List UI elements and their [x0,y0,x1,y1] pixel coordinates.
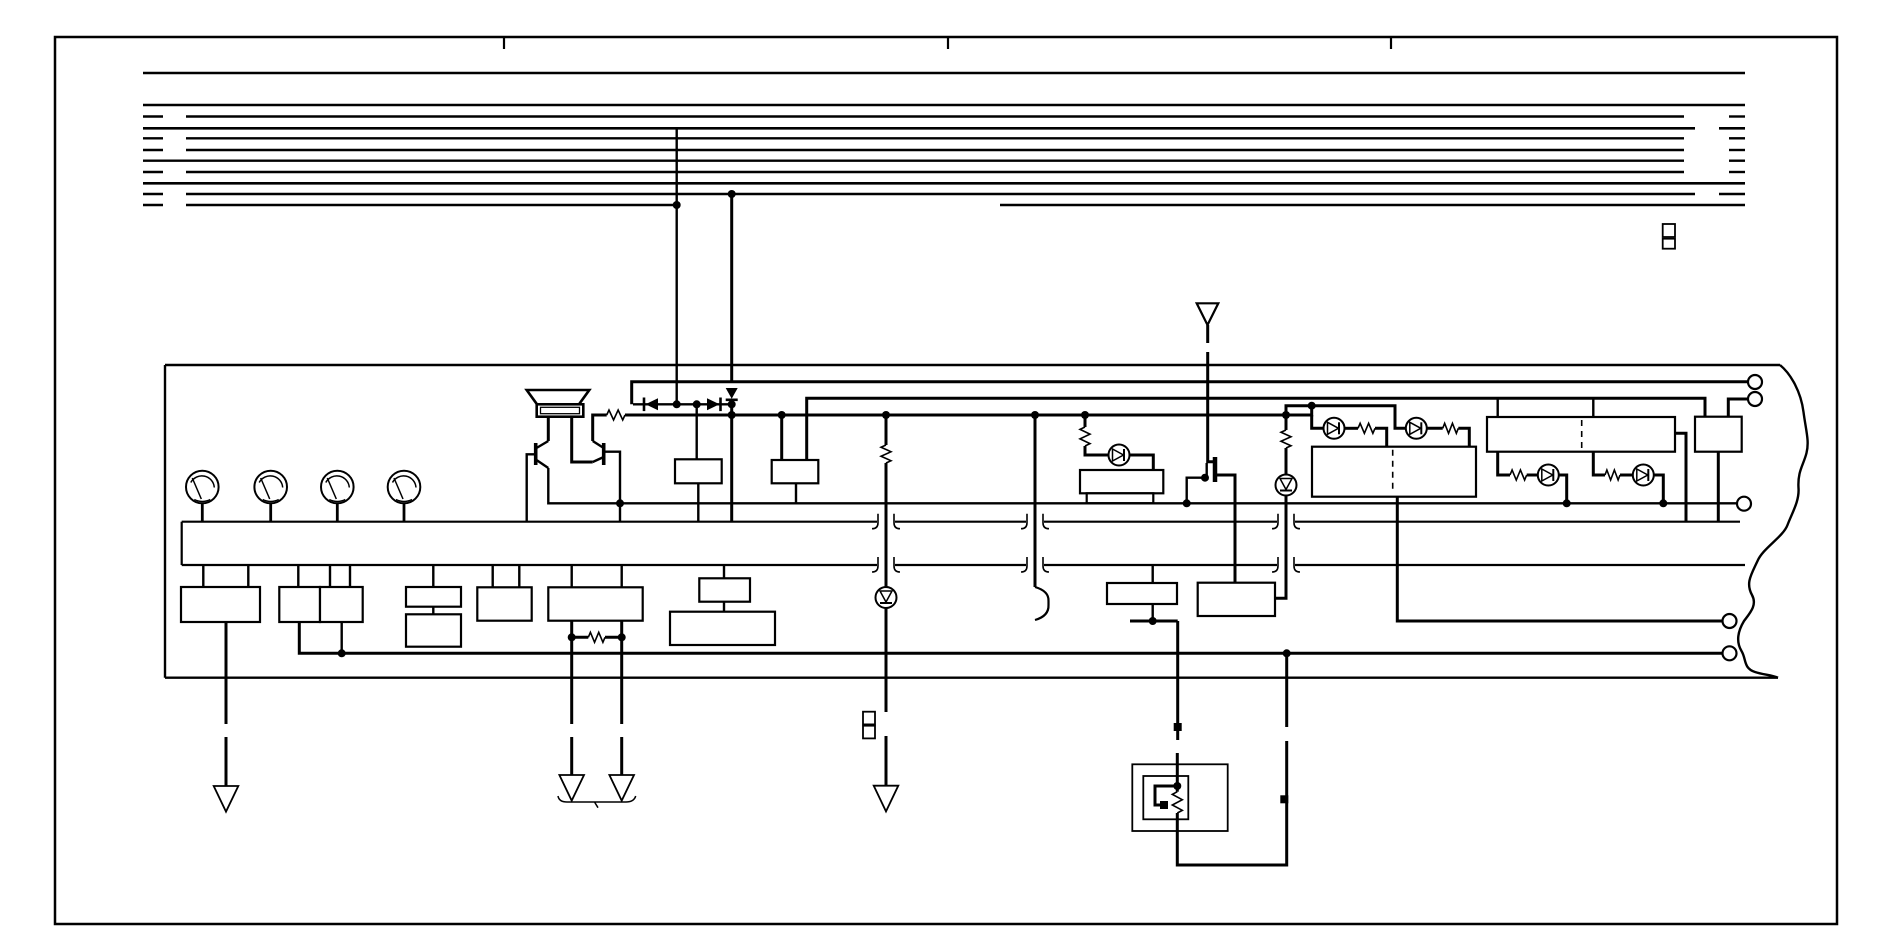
connector-squares-icon [1663,239,1675,249]
connector-squares-icon [863,726,875,739]
junction-dot [1173,782,1181,790]
resistor-icon [1443,423,1459,433]
block-m [1080,470,1163,493]
resistor-icon [881,445,891,463]
diode-icon [726,388,738,399]
page [0,0,1900,950]
junction-dot [1283,649,1291,657]
connector-squares-icon [863,712,875,725]
wire-405 [1286,406,1406,429]
junction-dot [616,499,624,507]
resistor-icon [588,632,605,642]
ground-icon [559,775,584,801]
wire-415-a [593,415,607,441]
junction-dot [618,633,626,641]
junction-dot [728,411,736,419]
wire-arrow-marker [1174,723,1182,731]
terminal-circle [1748,375,1762,389]
led-row1-out [1375,428,1387,446]
security-inner-box [1143,776,1188,819]
led-row1-in [1312,415,1324,428]
block-d [477,587,531,620]
block-b1 [279,587,320,622]
resistor-icon [1510,470,1527,480]
block-c1 [406,587,461,607]
resistor-icon [1281,430,1291,448]
junction-dot [673,400,681,408]
block-h [1198,583,1275,616]
junction-dot [1659,499,1667,507]
junction-dot [1563,499,1571,507]
block-k [675,459,722,483]
v1085-b [1085,446,1109,455]
antenna-icon [1197,303,1219,325]
speaker-leg2 [572,417,593,462]
junction-dot [1308,402,1316,410]
v1286-c [1275,496,1286,599]
speaker-body [537,404,584,416]
cluster-torn-edge [1738,365,1808,678]
wire-arrow-marker [1280,795,1288,803]
resistor-icon [1172,792,1182,813]
diode-icon [707,398,720,410]
resistor-icon [1080,427,1090,446]
rect3-bot2-c [1654,475,1664,503]
block-e [548,587,642,620]
t2-base [604,452,620,522]
terminal-circle [1748,392,1762,406]
resistor-icon [1358,423,1375,433]
ground-icon [874,786,899,812]
v1085-c [1130,455,1154,470]
junction-dot [1183,499,1191,507]
junction-dot [1031,411,1039,419]
block-c2 [406,614,461,646]
block-a [181,587,260,622]
junction-dot [728,190,736,198]
dashed-block-a [1312,447,1476,497]
led-row2-out [1458,428,1469,446]
speaker-horn-icon [527,390,590,404]
wiring-diagram-canvas [0,0,1900,950]
junction-dot [568,633,576,641]
antenna-lead-b [1208,352,1214,462]
t1-emitter [537,460,549,468]
diode-icon [646,398,659,410]
block-f1 [699,578,750,601]
junction-dot [778,411,786,419]
terminal-circle [1723,614,1737,628]
wire-382 [632,382,1748,405]
wire-653 [299,622,1722,653]
rect3-bot2-a [1593,452,1605,475]
block-l [772,460,819,483]
connector-squares-icon [1663,224,1675,237]
junction-dot [673,201,681,209]
ground-icon [609,775,634,801]
resistor-icon [607,410,625,420]
terminal-circle [1723,646,1737,660]
rect3-bot1-c [1559,475,1567,503]
rect2-side [1675,433,1686,521]
junction-dot [1149,617,1157,625]
block-m2 [1087,493,1154,503]
junction-dot [728,400,736,408]
junction-dot [693,400,701,408]
junction-dot [1081,411,1089,419]
wire-jog [1035,587,1049,620]
resistor-icon [1605,470,1620,480]
t1-collector [537,441,549,448]
terminal-circle [1737,497,1751,511]
rect3-bot1-a [1498,452,1510,475]
junction-dot [882,411,890,419]
terminal2-wire [1728,399,1748,417]
block-j [1695,417,1742,452]
block-b2 [320,587,363,622]
block-g [1107,583,1177,604]
junction-dot [1282,411,1290,419]
v1286-e [1177,741,1286,865]
junction-dot [338,649,346,657]
block-f2 [670,612,775,645]
ground-icon [214,786,239,812]
wire-621-right [1397,497,1722,621]
mosfet-source [1215,475,1235,583]
wire-arrow-marker [1160,801,1168,809]
mosfet-gate-wire [1187,478,1207,504]
